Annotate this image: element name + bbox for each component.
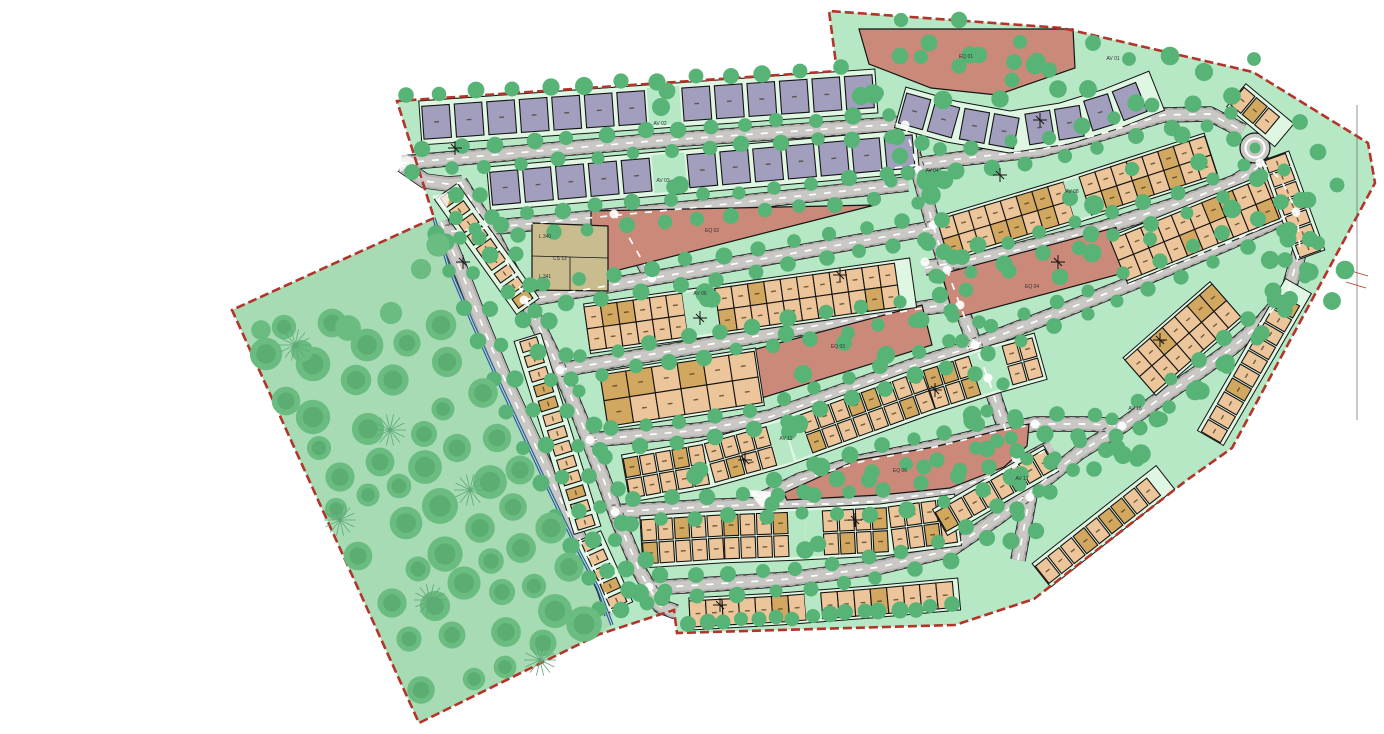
svg-text:EQ 03: EQ 03: [831, 344, 845, 350]
svg-text:AV 02: AV 02: [653, 121, 666, 127]
svg-text:EQ 06: EQ 06: [893, 468, 907, 474]
svg-text:EQ 02: EQ 02: [705, 228, 719, 234]
svg-text:EQ 04: EQ 04: [1025, 284, 1039, 290]
svg-text:AV 17: AV 17: [1015, 476, 1028, 482]
svg-text:EQ 01: EQ 01: [959, 54, 973, 60]
svg-text:L 340: L 340: [539, 234, 552, 240]
svg-text:AV 03: AV 03: [656, 178, 669, 184]
svg-text:AV 08: AV 08: [1065, 189, 1078, 195]
svg-text:AV 06: AV 06: [693, 291, 706, 297]
svg-text:AV 01: AV 01: [1106, 56, 1119, 62]
svg-text:AV 04: AV 04: [925, 168, 938, 174]
svg-text:AV 11: AV 11: [780, 436, 793, 442]
svg-text:CS 12: CS 12: [553, 256, 567, 262]
svg-text:L 341: L 341: [539, 274, 552, 280]
svg-text:AV 16: AV 16: [1128, 406, 1141, 412]
